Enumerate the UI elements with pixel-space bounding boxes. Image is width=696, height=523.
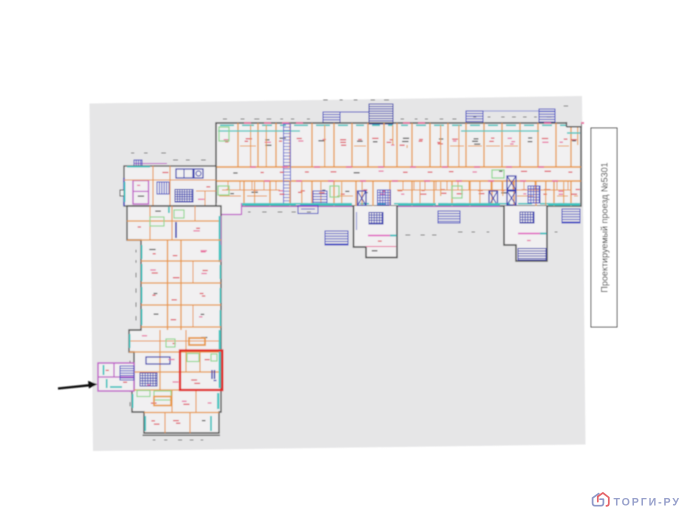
svg-text:Проектируемый проезд №5301: Проектируемый проезд №5301	[600, 162, 610, 292]
svg-text:ТОРГИ-РУ: ТОРГИ-РУ	[614, 497, 681, 509]
